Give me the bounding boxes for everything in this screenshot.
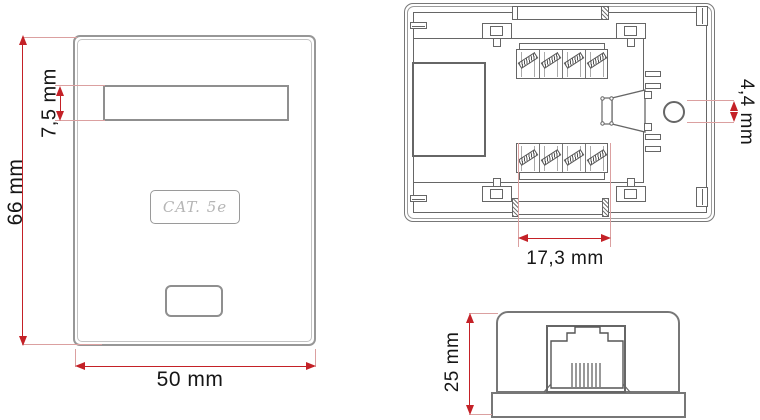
- dimension-label: 50 mm: [157, 368, 224, 392]
- latch-inner: [624, 189, 637, 199]
- corner-clip: [696, 6, 708, 26]
- arrow-up-icon: [466, 313, 474, 323]
- wall-tab: [645, 134, 661, 140]
- latch-bottom-right: [616, 178, 647, 204]
- wall-tab: [645, 83, 661, 89]
- slot-end-cap-hatched: [601, 6, 609, 20]
- extension-line: [22, 37, 77, 38]
- latch-top-right: [616, 23, 647, 49]
- dimension-label: 25 mm: [442, 332, 464, 393]
- idc-divider: [585, 144, 586, 172]
- extension-line: [687, 122, 734, 123]
- dimension-label: 66 mm: [4, 159, 28, 226]
- wall-tab: [645, 146, 661, 152]
- category-label-text: CAT. 5e: [163, 198, 227, 216]
- dimension-line: [521, 238, 608, 239]
- extension-line: [687, 100, 734, 101]
- idc-divider: [539, 50, 540, 78]
- rj45-keystone-profile: [540, 320, 635, 398]
- corner-clip: [410, 195, 427, 202]
- jack-block: [412, 62, 486, 157]
- latch-inner: [490, 26, 503, 36]
- cable-hole: [663, 101, 685, 123]
- arrow-up-icon: [19, 35, 27, 45]
- technical-drawing-canvas: CAT. 5e 66 mm 7,5 mm: [0, 0, 760, 420]
- dimension-label: 7,5 mm: [39, 68, 62, 138]
- label-window: [103, 85, 289, 121]
- extension-line: [22, 344, 102, 345]
- category-label-plate: CAT. 5e: [150, 190, 240, 224]
- idc-divider: [585, 50, 586, 78]
- corner-clip: [696, 187, 708, 207]
- mounting-slot-bottom: [516, 201, 608, 215]
- extension-line: [518, 143, 519, 247]
- funnel-mouth-notch: [644, 123, 652, 131]
- latch-inner: [490, 189, 503, 199]
- corner-clip: [410, 22, 427, 29]
- arrow-down-icon: [466, 405, 474, 415]
- idc-block-bottom: [516, 143, 609, 181]
- dimension-line: [78, 366, 314, 367]
- latch-tab: [627, 38, 635, 47]
- latch-bottom-left: [482, 178, 513, 204]
- dimension-line: [469, 320, 470, 409]
- arrow-down-icon: [19, 336, 27, 346]
- keystone-outline: [551, 327, 623, 388]
- latch-top-left: [482, 23, 513, 49]
- funnel-neck: [602, 98, 612, 124]
- latch-inner: [624, 26, 637, 36]
- blank-insert: [165, 285, 223, 317]
- idc-divider: [562, 50, 563, 78]
- funnel-mouth-notch: [644, 91, 652, 99]
- arrow-right-icon: [306, 362, 316, 370]
- dimension-label: 4,4 mm: [735, 79, 757, 145]
- funnel-cone: [612, 90, 645, 132]
- idc-divider: [562, 144, 563, 172]
- arrow-right-icon: [601, 234, 611, 242]
- latch-tab: [493, 38, 501, 47]
- slot-end-cap-hatched: [602, 198, 609, 217]
- mounting-slot-top: [516, 6, 608, 20]
- arrow-left-icon: [518, 234, 528, 242]
- wall-tab: [645, 71, 661, 77]
- idc-band: [519, 172, 605, 180]
- idc-block-top: [516, 43, 609, 80]
- slot-end-cap: [512, 6, 518, 20]
- idc-divider: [539, 144, 540, 172]
- arrow-left-icon: [75, 362, 85, 370]
- dimension-label: 17,3 mm: [526, 248, 603, 270]
- extension-line: [610, 143, 611, 247]
